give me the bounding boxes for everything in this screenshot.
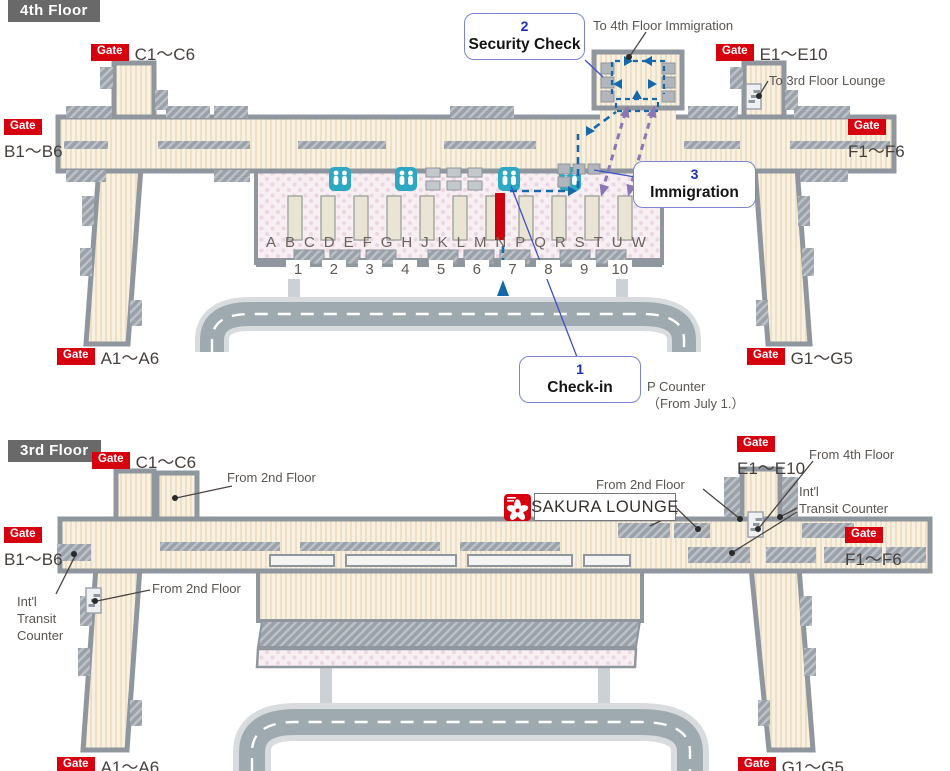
restroom-icon — [498, 167, 520, 191]
note-from-2nd-floor-c: From 2nd Floor — [227, 470, 316, 487]
checkin-letter: C — [304, 234, 315, 251]
gate-badge: Gate — [92, 452, 130, 468]
gate-label-g-3f: Gate G1～G5 — [738, 753, 844, 771]
checkin-letter: N — [495, 234, 506, 251]
gate-badge: Gate — [716, 44, 754, 60]
gate-label-b-3f: Gate B1～B6 — [4, 527, 63, 570]
step-number: 1 — [520, 361, 640, 379]
checkin-entrance-number: 9 — [572, 260, 596, 279]
curbside-road-3f — [252, 722, 690, 771]
note-to-4f-immigration: To 4th Floor Immigration — [593, 18, 733, 35]
step-checkin: 1 Check-in — [519, 356, 641, 403]
gate-label-a-4f: Gate A1～A6 — [57, 344, 159, 369]
terminal-leg — [598, 664, 610, 708]
step-security-check: 2 Security Check — [464, 13, 585, 60]
checkin-entrance-number: 2 — [322, 260, 346, 279]
gate-badge: Gate — [747, 348, 785, 364]
gate-label-f-3f: Gate F1～F6 — [845, 527, 902, 570]
terminal-leg — [320, 664, 332, 708]
checkin-letters-row: ABCDEFGHJKLMNPQRSTUW — [266, 234, 646, 251]
gate-range: C1～C6 — [136, 448, 196, 473]
central-dots-band — [257, 649, 636, 667]
restroom-icon — [329, 167, 351, 191]
escalator-icon — [748, 512, 763, 537]
gate-label-g-4f: Gate G1～G5 — [747, 344, 853, 369]
checkin-letter: U — [612, 234, 623, 251]
gate-label-c-3f: Gate C1～C6 — [92, 448, 196, 473]
airport-terminal-map: 4th Floor Gate C1～C6 Gate E1～E10 Gate B1… — [0, 0, 950, 771]
step-label: Security Check — [465, 36, 584, 54]
gate-badge: Gate — [91, 44, 129, 60]
checkin-letter: K — [438, 234, 448, 251]
floor3-title: 3rd Floor — [8, 440, 101, 462]
gate-range: F1～F6 — [848, 137, 905, 162]
step-number: 2 — [465, 18, 584, 36]
gate-label-e-4f: Gate E1～E10 — [716, 40, 828, 65]
gate-range: G1～G5 — [782, 753, 844, 771]
checkin-entrance-number: 6 — [465, 260, 489, 279]
gate-label-f-4f: Gate F1～F6 — [848, 119, 905, 162]
gate-badge: Gate — [57, 348, 95, 364]
pier-c-4f — [114, 63, 154, 123]
restroom-icon — [395, 167, 417, 191]
gate-range: B1～B6 — [4, 137, 63, 162]
checkin-letter: P — [515, 234, 525, 251]
checkin-entrance-number: 7 — [501, 260, 525, 279]
gate-range: E1～E10 — [737, 454, 805, 479]
checkin-letter: A — [266, 234, 276, 251]
gate-badge: Gate — [845, 527, 883, 543]
curbside-road-4f — [212, 314, 684, 352]
note-intl-transit-right: Int'l Transit Counter — [799, 484, 888, 518]
checkin-letter: J — [421, 234, 429, 251]
checkin-entrance-number: 8 — [536, 260, 560, 279]
checkin-letter: F — [363, 234, 372, 251]
gate-label-e-3f: Gate E1～E10 — [737, 436, 805, 479]
note-from-2nd-floor-center: From 2nd Floor — [596, 477, 685, 494]
checkin-entrance-number: 4 — [393, 260, 417, 279]
step-immigration: 3 Immigration — [633, 161, 756, 208]
gate-range: A1～A6 — [101, 344, 160, 369]
gate-badge: Gate — [738, 757, 776, 771]
gate-badge: Gate — [848, 119, 886, 135]
gate-badge: Gate — [737, 436, 775, 452]
checkin-letter: Q — [534, 234, 546, 251]
checkin-letter: L — [457, 234, 465, 251]
note-to-3f-lounge: To 3rd Floor Lounge — [769, 73, 885, 90]
checkin-letter: B — [285, 234, 295, 251]
gate-badge: Gate — [4, 119, 42, 135]
sakura-lounge-icon — [504, 494, 531, 522]
gate-badge: Gate — [4, 527, 42, 543]
gate-label-c-4f: Gate C1～C6 — [91, 40, 195, 65]
checkin-entrance-number: 10 — [608, 260, 632, 279]
checkin-letter: E — [344, 234, 354, 251]
step-label: Immigration — [634, 184, 755, 202]
checkin-letter: S — [575, 234, 585, 251]
checkin-entrance-number: 3 — [358, 260, 382, 279]
note-from-4th-floor: From 4th Floor — [809, 447, 894, 464]
gate-badge: Gate — [57, 757, 95, 771]
sakura-lounge-label: SAKURA LOUNGE — [534, 493, 676, 521]
gate-range: F1～F6 — [845, 545, 902, 570]
gate-label-a-3f: Gate A1～A6 — [57, 753, 159, 771]
checkin-letter: R — [555, 234, 566, 251]
gate-range: A1～A6 — [101, 753, 160, 771]
floor4-title: 4th Floor — [8, 0, 100, 22]
checkin-letter: T — [594, 234, 603, 251]
gate-label-b-4f: Gate B1～B6 — [4, 119, 63, 162]
checkin-numbers-row: 12345678910 — [286, 260, 632, 279]
step-label: Check-in — [520, 379, 640, 397]
gate-range: C1～C6 — [135, 40, 195, 65]
checkin-letter: G — [381, 234, 393, 251]
central-hatch-band — [258, 621, 640, 647]
note-from-2nd-floor-left: From 2nd Floor — [152, 581, 241, 598]
terminal-map-canvas — [0, 0, 950, 771]
gate-range: G1～G5 — [791, 344, 853, 369]
checkin-letter: W — [632, 234, 646, 251]
step-number: 3 — [634, 166, 755, 184]
checkin-entrance-number: 1 — [286, 260, 310, 279]
checkin-letter: M — [474, 234, 487, 251]
gate-range: E1～E10 — [760, 40, 828, 65]
p-counter-highlight — [495, 193, 505, 240]
security-check-area — [594, 52, 682, 120]
note-p-counter: P Counter （From July 1.） — [647, 379, 745, 413]
checkin-letter: H — [401, 234, 412, 251]
checkin-letter: D — [324, 234, 335, 251]
note-intl-transit-left: Int'l Transit Counter — [17, 594, 63, 645]
checkin-entrance-number: 5 — [429, 260, 453, 279]
gate-range: B1～B6 — [4, 545, 63, 570]
